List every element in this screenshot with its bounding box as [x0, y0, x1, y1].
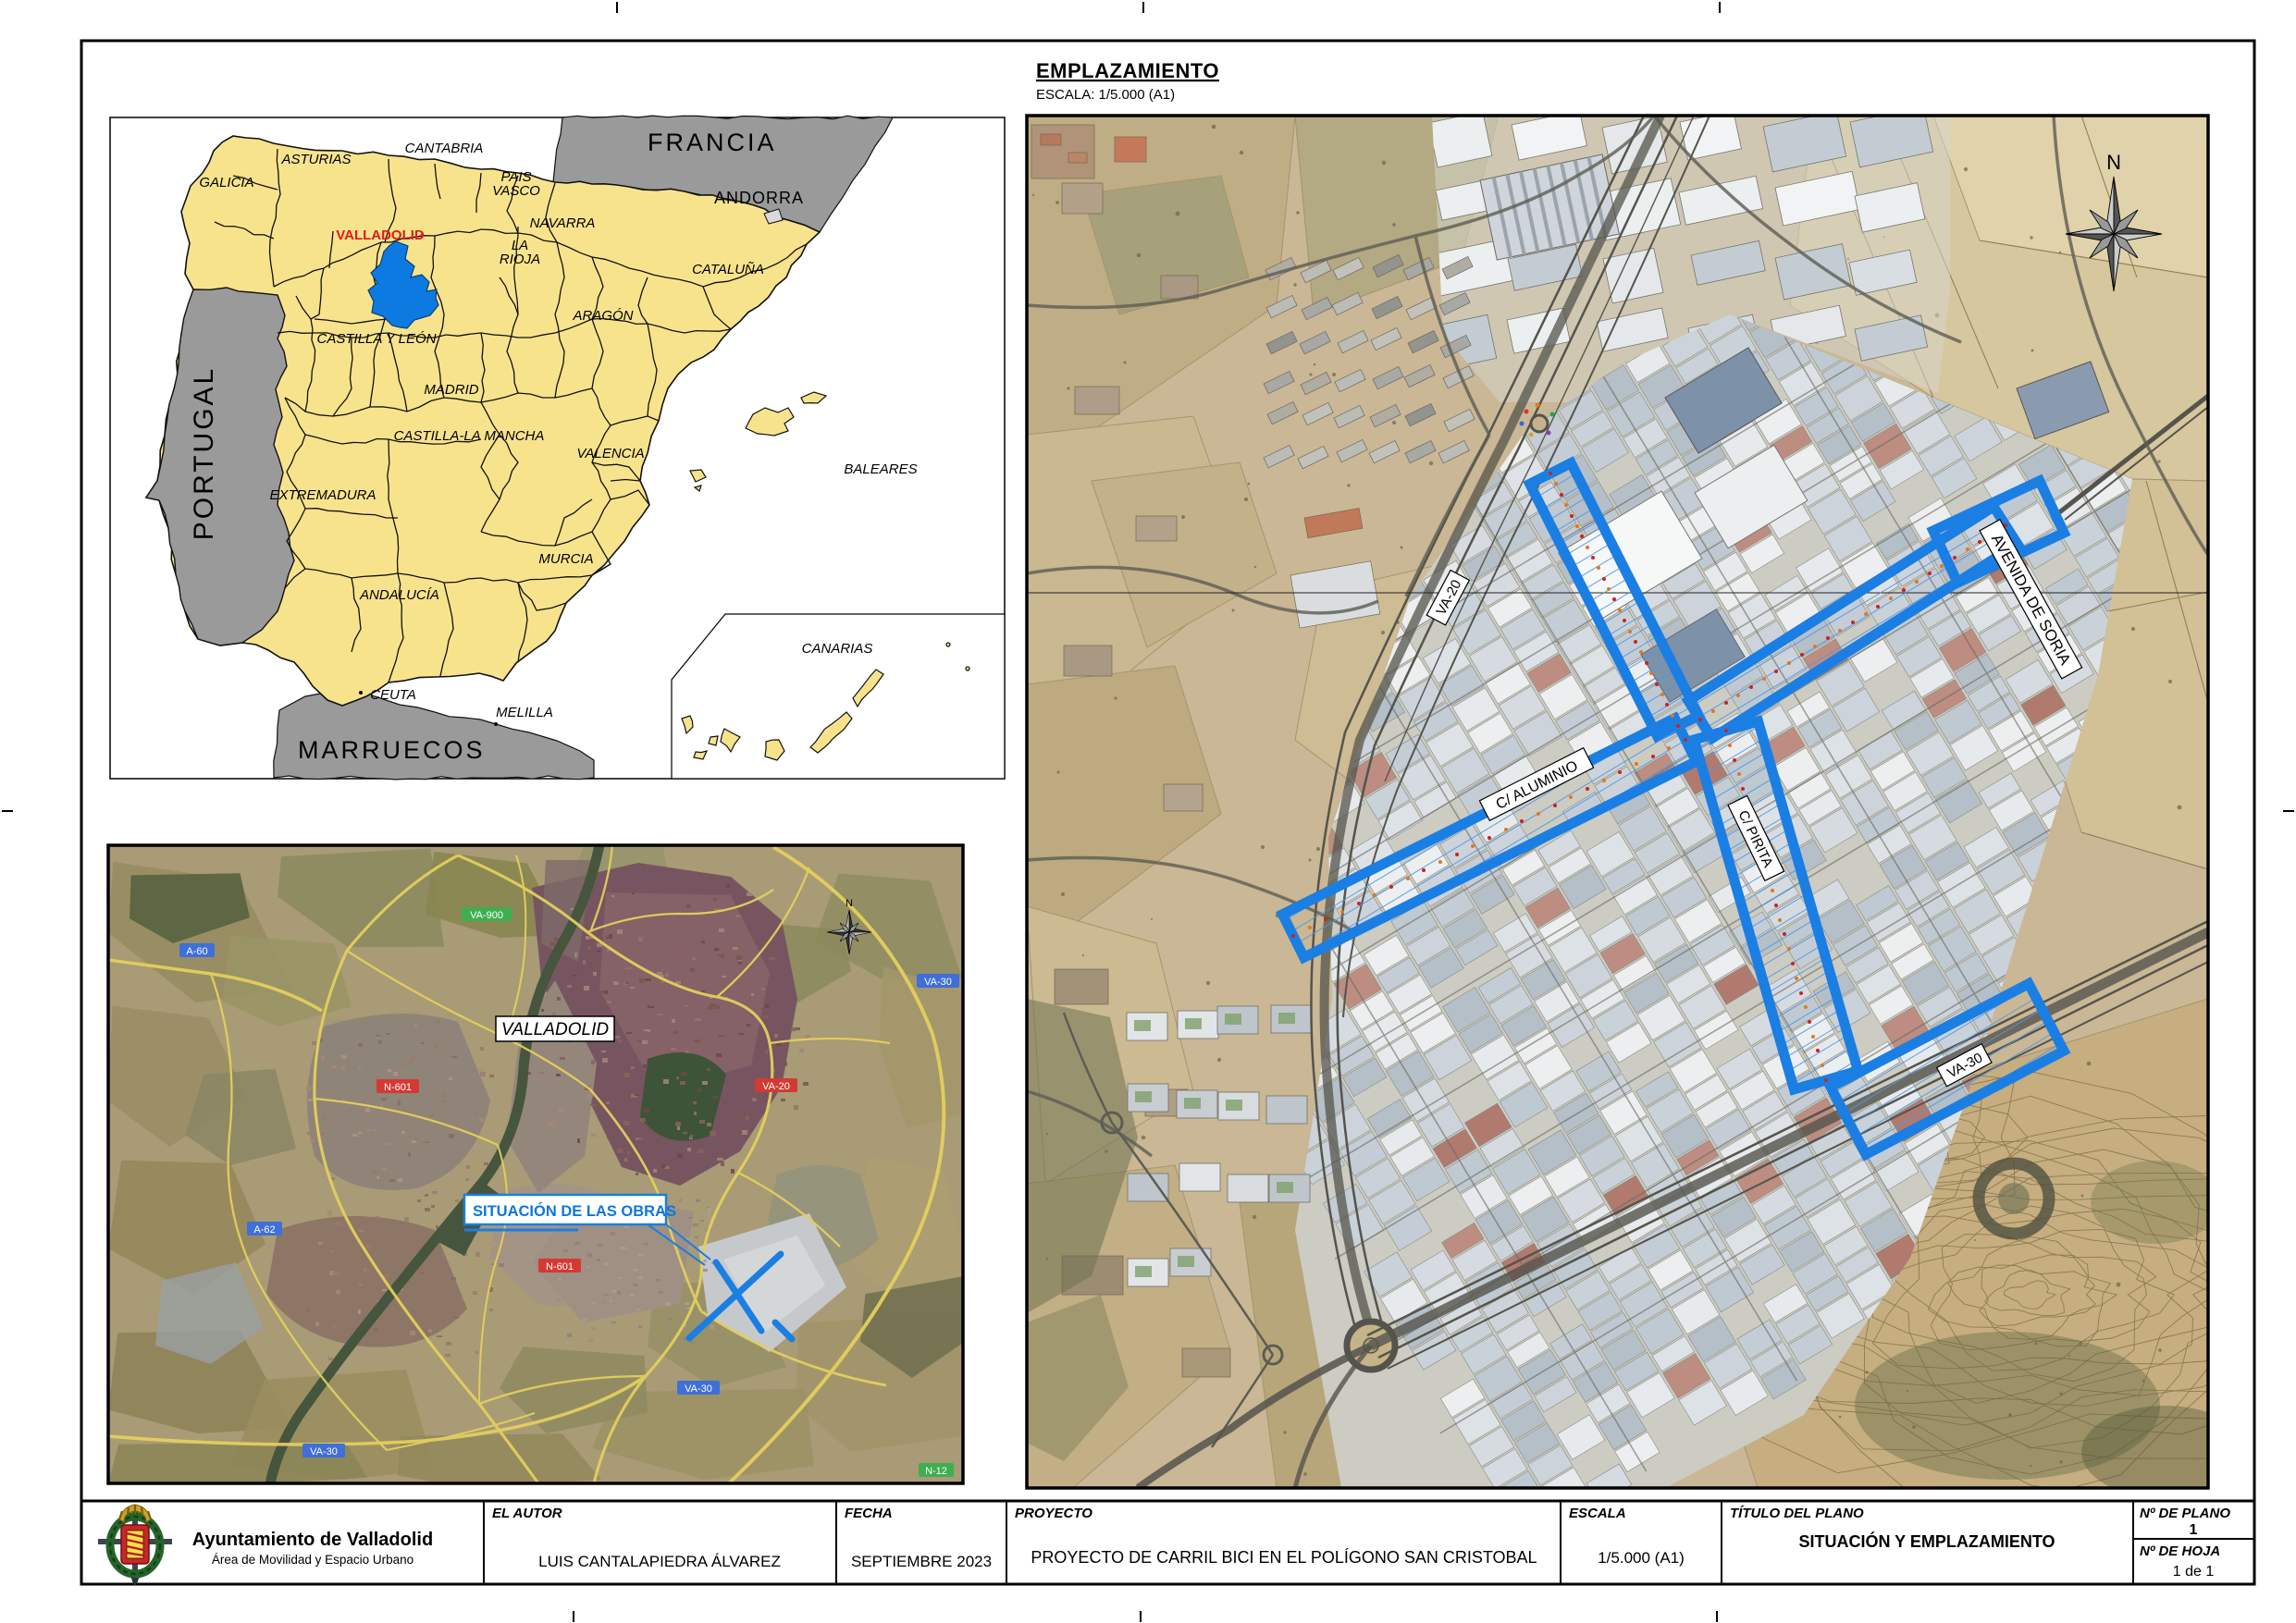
- svg-text:ANDORRA: ANDORRA: [714, 189, 804, 207]
- svg-text:RIOJA: RIOJA: [500, 252, 540, 267]
- svg-text:VA-30: VA-30: [924, 977, 952, 988]
- svg-text:EL AUTOR: EL AUTOR: [492, 1506, 562, 1521]
- svg-text:BALEARES: BALEARES: [844, 461, 917, 477]
- svg-text:ASTURIAS: ASTURIAS: [280, 152, 351, 167]
- svg-text:VALENCIA: VALENCIA: [576, 446, 644, 461]
- svg-text:TÍTULO DEL PLANO: TÍTULO DEL PLANO: [1730, 1506, 1864, 1521]
- svg-text:1: 1: [2190, 1522, 2198, 1538]
- svg-text:CASTILLA-LA MANCHA: CASTILLA-LA MANCHA: [394, 428, 545, 444]
- svg-text:LUIS CANTALAPIEDRA ÁLVAREZ: LUIS CANTALAPIEDRA ÁLVAREZ: [538, 1553, 781, 1570]
- svg-text:FRANCIA: FRANCIA: [648, 129, 777, 156]
- svg-text:VA-20: VA-20: [762, 1081, 790, 1092]
- svg-text:SITUACIÓN DE LAS OBRAS: SITUACIÓN DE LAS OBRAS: [473, 1202, 676, 1220]
- svg-text:FECHA: FECHA: [845, 1506, 893, 1521]
- svg-text:A-62: A-62: [253, 1224, 275, 1236]
- svg-text:A-60: A-60: [186, 946, 207, 957]
- svg-text:VASCO: VASCO: [492, 183, 540, 199]
- svg-text:VALLADOLID: VALLADOLID: [501, 1020, 609, 1039]
- svg-text:VA-30: VA-30: [310, 1446, 338, 1457]
- svg-text:CEUTA: CEUTA: [370, 687, 416, 703]
- svg-text:GALICIA: GALICIA: [199, 175, 253, 191]
- svg-text:1/5.000 (A1): 1/5.000 (A1): [1598, 1549, 1685, 1567]
- svg-text:N: N: [846, 898, 853, 909]
- svg-text:EMPLAZAMIENTO: EMPLAZAMIENTO: [1036, 59, 1219, 82]
- svg-text:MADRID: MADRID: [424, 382, 478, 398]
- svg-text:1 de 1: 1 de 1: [2173, 1564, 2215, 1580]
- svg-text:MARRUECOS: MARRUECOS: [298, 736, 486, 764]
- svg-text:EXTREMADURA: EXTREMADURA: [269, 487, 376, 503]
- svg-text:PROYECTO DE CARRIL BICI EN EL: PROYECTO DE CARRIL BICI EN EL POLÍGONO S…: [1031, 1548, 1537, 1567]
- svg-text:VA-900: VA-900: [470, 910, 503, 921]
- svg-text:CASTILLA Y LEÓN: CASTILLA Y LEÓN: [317, 331, 437, 347]
- svg-text:PORTUGAL: PORTUGAL: [189, 366, 219, 541]
- svg-text:MELILLA: MELILLA: [496, 705, 553, 720]
- svg-text:SEPTIEMBRE 2023: SEPTIEMBRE 2023: [851, 1553, 992, 1570]
- svg-text:Ayuntamiento de Valladolid: Ayuntamiento de Valladolid: [192, 1530, 433, 1550]
- svg-text:Área de Movilidad y Espacio Ur: Área de Movilidad y Espacio Urbano: [212, 1553, 414, 1567]
- svg-text:CATALUÑA: CATALUÑA: [692, 262, 764, 277]
- svg-text:ARAGÓN: ARAGÓN: [572, 308, 633, 324]
- svg-text:NAVARRA: NAVARRA: [530, 215, 596, 231]
- svg-text:ESCALA: 1/5.000 (A1): ESCALA: 1/5.000 (A1): [1036, 87, 1175, 103]
- svg-text:ESCALA: ESCALA: [1569, 1506, 1626, 1521]
- svg-text:CANARIAS: CANARIAS: [802, 641, 873, 657]
- svg-text:N: N: [2106, 151, 2121, 174]
- svg-text:N-12: N-12: [925, 1466, 947, 1477]
- svg-text:N-601: N-601: [546, 1261, 574, 1273]
- svg-text:Nº DE HOJA: Nº DE HOJA: [2140, 1543, 2220, 1559]
- svg-text:N-601: N-601: [384, 1082, 412, 1093]
- svg-text:ANDALUCÍA: ANDALUCÍA: [359, 587, 439, 603]
- svg-text:CANTABRIA: CANTABRIA: [405, 141, 484, 156]
- svg-text:PROYECTO: PROYECTO: [1015, 1506, 1092, 1521]
- svg-text:VA-30: VA-30: [685, 1383, 712, 1395]
- svg-text:SITUACIÓN Y EMPLAZAMIENTO: SITUACIÓN Y EMPLAZAMIENTO: [1798, 1531, 2055, 1551]
- svg-text:VALLADOLID: VALLADOLID: [336, 227, 425, 243]
- svg-text:Nº DE PLANO: Nº DE PLANO: [2140, 1506, 2230, 1521]
- svg-text:MURCIA: MURCIA: [538, 551, 593, 567]
